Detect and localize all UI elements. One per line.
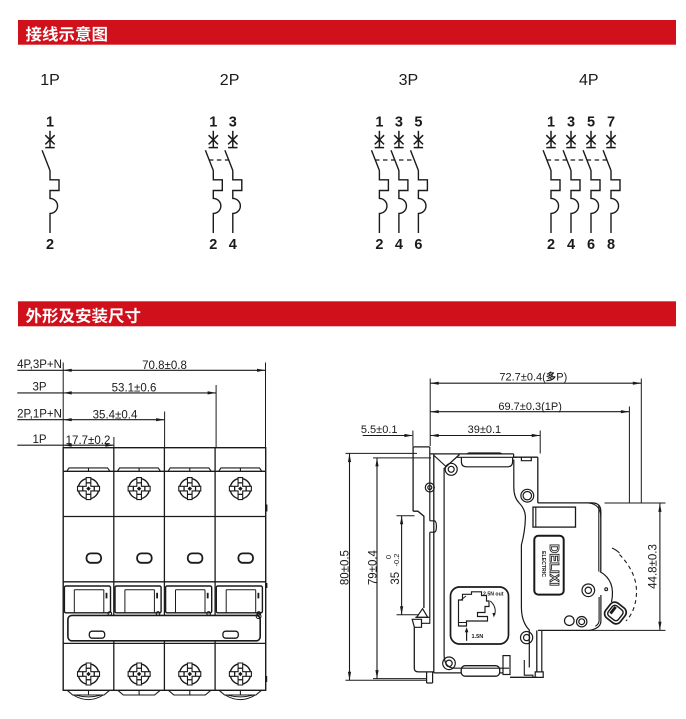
- svg-text:-0.2: -0.2: [392, 554, 401, 567]
- svg-text:P): P): [556, 371, 567, 383]
- svg-text:6: 6: [414, 237, 422, 253]
- svg-text:DELIXI: DELIXI: [547, 544, 561, 586]
- svg-text:1: 1: [375, 114, 383, 130]
- svg-text:1: 1: [46, 114, 54, 130]
- svg-text:6: 6: [587, 237, 595, 253]
- svg-text:7: 7: [607, 114, 615, 130]
- svg-text:3P: 3P: [399, 72, 419, 89]
- svg-text:1P: 1P: [40, 72, 60, 89]
- svg-text:4: 4: [567, 237, 575, 253]
- svg-text:79±0.4: 79±0.4: [367, 549, 379, 585]
- svg-text:35: 35: [390, 572, 402, 585]
- svg-text:2: 2: [547, 237, 555, 253]
- svg-text:3: 3: [395, 114, 403, 130]
- svg-text:1: 1: [547, 114, 555, 130]
- svg-text:2P,1P+N: 2P,1P+N: [17, 408, 62, 420]
- svg-text:5: 5: [414, 114, 422, 130]
- svg-text:1.5N: 1.5N: [472, 634, 484, 640]
- svg-text:3P: 3P: [32, 382, 46, 394]
- svg-text:1: 1: [209, 114, 217, 130]
- svg-text:70.8±0.8: 70.8±0.8: [142, 360, 187, 372]
- svg-text:3: 3: [229, 114, 237, 130]
- svg-text:3: 3: [567, 114, 575, 130]
- svg-text:39±0.1: 39±0.1: [468, 424, 502, 436]
- svg-text:8: 8: [607, 237, 615, 253]
- svg-text:2: 2: [209, 237, 217, 253]
- svg-text:2: 2: [375, 237, 383, 253]
- svg-text:5.5±0.1: 5.5±0.1: [361, 424, 398, 436]
- svg-text:4P: 4P: [579, 72, 599, 89]
- svg-text:5: 5: [587, 114, 595, 130]
- svg-text:35.4±0.4: 35.4±0.4: [93, 409, 138, 421]
- svg-text:2.5N out: 2.5N out: [483, 592, 504, 598]
- svg-text:4: 4: [229, 237, 237, 253]
- svg-text:ELECTRIC: ELECTRIC: [540, 551, 546, 577]
- svg-text:17.7±0.2: 17.7±0.2: [66, 435, 111, 447]
- svg-text:72.7±0.4(: 72.7±0.4(: [499, 371, 546, 383]
- svg-text:44.8±0.3: 44.8±0.3: [647, 544, 659, 589]
- svg-text:2P: 2P: [220, 72, 240, 89]
- svg-text:1P: 1P: [32, 434, 46, 446]
- svg-text:4: 4: [395, 237, 403, 253]
- svg-text:53.1±0.6: 53.1±0.6: [112, 383, 157, 395]
- svg-text:2: 2: [46, 237, 54, 253]
- svg-text:4P,3P+N: 4P,3P+N: [17, 359, 62, 371]
